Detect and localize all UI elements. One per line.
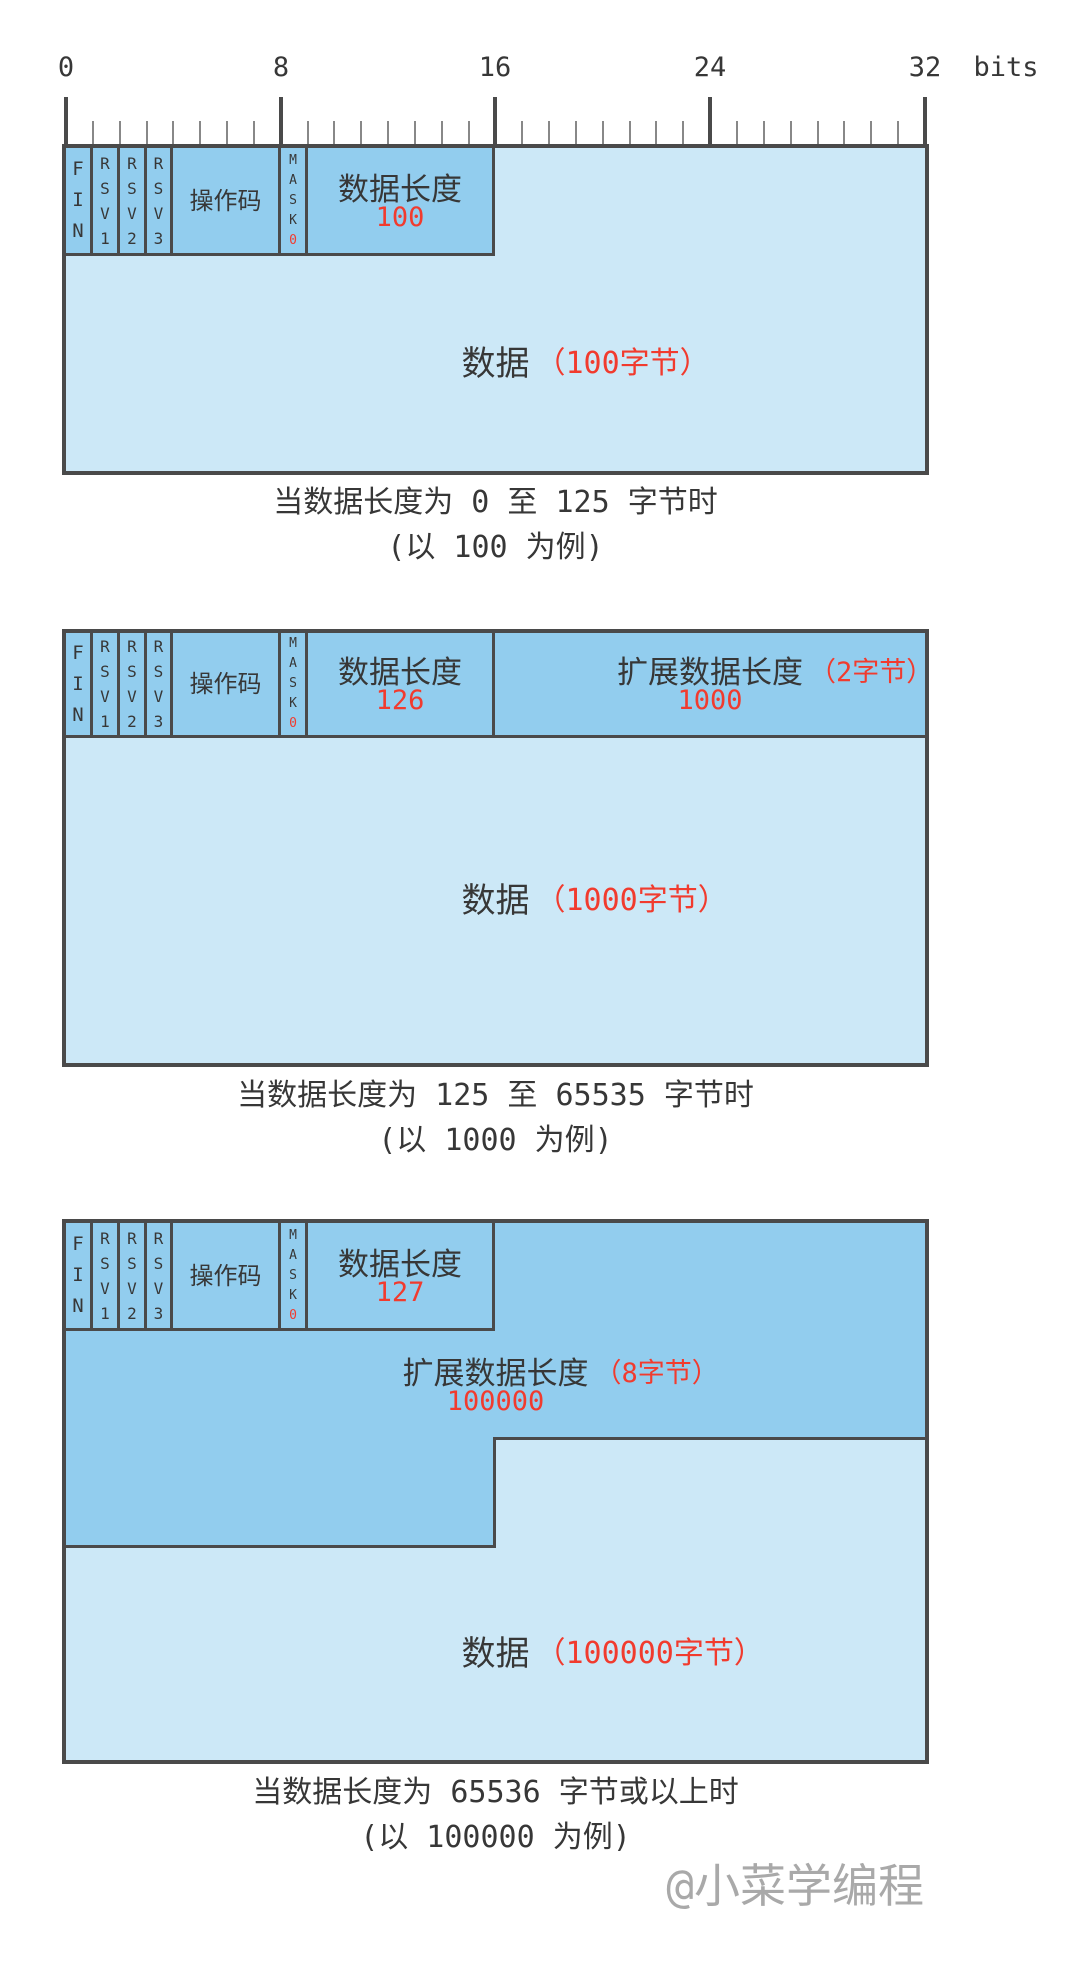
region-border xyxy=(495,1437,925,1440)
mask-label: MASK xyxy=(289,634,297,714)
rsv2-field: RSV2 xyxy=(120,148,147,253)
ruler-major-tick xyxy=(279,97,283,148)
caption-line: 当数据长度为 0 至 125 字节时 xyxy=(62,480,929,525)
payload-length-field: 数据长度 100 xyxy=(308,148,495,253)
rsv3-field: RSV3 xyxy=(147,633,173,735)
payload-length-field: 数据长度 126 xyxy=(308,633,495,735)
rsv3-field: RSV3 xyxy=(147,148,173,253)
rsv3-label: RSV3 xyxy=(154,151,164,251)
frame1-header: FIN RSV1 RSV2 RSV3 操作码 MASK 0 数据长度 100 xyxy=(66,148,495,256)
payload-area: 数据 （1000字节） xyxy=(66,738,925,1063)
payload-label: 数据 xyxy=(462,881,530,921)
extended-length-value: 1000 xyxy=(677,689,742,713)
caption-diagram-3: 当数据长度为 65536 字节或以上时 (以 100000 为例) xyxy=(62,1770,929,1860)
rsv2-field: RSV2 xyxy=(120,633,147,735)
ruler-labels: 0 8 16 24 32 bits xyxy=(66,52,1066,86)
payload-length-field: 数据长度 127 xyxy=(308,1223,495,1328)
watermark: @小菜学编程 xyxy=(666,1856,924,1916)
mask-label: MASK xyxy=(289,151,297,231)
ruler-label-32: 32 xyxy=(909,52,942,84)
fin-field: FIN xyxy=(66,633,93,735)
fin-label: FIN xyxy=(72,1229,83,1322)
extended-length-region xyxy=(66,1439,495,1547)
caption-line: (以 100000 为例) xyxy=(62,1815,929,1860)
payload-length-value: 100 xyxy=(376,206,425,230)
ruler-major-tick xyxy=(923,97,927,148)
rsv2-field: RSV2 xyxy=(120,1223,147,1328)
ruler-label-24: 24 xyxy=(694,52,727,84)
rsv1-field: RSV1 xyxy=(93,148,120,253)
fin-label: FIN xyxy=(72,638,83,731)
payload-length-value: 127 xyxy=(376,1281,425,1305)
extended-length-value: 100000 xyxy=(447,1390,545,1414)
mask-label: MASK xyxy=(289,1226,297,1306)
payload-length-value: 126 xyxy=(376,689,425,713)
fin-field: FIN xyxy=(66,148,93,253)
frame-diagram-1: FIN RSV1 RSV2 RSV3 操作码 MASK 0 数据长度 100 数… xyxy=(62,144,929,475)
frame3-header: FIN RSV1 RSV2 RSV3 操作码 MASK 0 数据长度 127 xyxy=(66,1223,495,1331)
mask-field: MASK 0 xyxy=(281,148,308,253)
payload-size-note: （1000字节） xyxy=(536,881,728,921)
extended-length-note: （8字节） xyxy=(595,1356,719,1392)
mask-field: MASK 0 xyxy=(281,1223,308,1328)
ruler-label-0: 0 xyxy=(58,52,74,84)
frame-diagram-2: FIN RSV1 RSV2 RSV3 操作码 MASK 0 数据长度 126 扩… xyxy=(62,629,929,1067)
ruler-major-tick xyxy=(493,97,497,148)
extended-length-label: 扩展数据长度 xyxy=(617,655,803,691)
opcode-field: 操作码 xyxy=(173,633,281,735)
rsv3-label: RSV3 xyxy=(154,634,164,734)
rsv2-label: RSV2 xyxy=(127,634,137,734)
rsv1-field: RSV1 xyxy=(93,633,120,735)
rsv1-label: RSV1 xyxy=(100,151,110,251)
mask-bit-value: 0 xyxy=(289,231,297,251)
mask-bit-value: 0 xyxy=(289,714,297,734)
caption-line: 当数据长度为 125 至 65535 字节时 xyxy=(62,1073,929,1118)
opcode-label: 操作码 xyxy=(190,186,262,216)
mask-bit-value: 0 xyxy=(289,1306,297,1326)
opcode-field: 操作码 xyxy=(173,148,281,253)
payload-size-note: （100字节） xyxy=(536,344,710,384)
rsv3-field: RSV3 xyxy=(147,1223,173,1328)
extended-length-note: （2字节） xyxy=(809,655,925,691)
fin-label: FIN xyxy=(72,154,83,247)
rsv2-label: RSV2 xyxy=(127,1226,137,1326)
extended-length-field: 扩展数据长度 （2字节） 1000 xyxy=(495,633,925,735)
region-border xyxy=(493,1437,496,1547)
payload-label: 数据 xyxy=(462,344,530,384)
bit-ruler xyxy=(66,97,927,148)
opcode-label: 操作码 xyxy=(190,1261,262,1291)
frame2-header: FIN RSV1 RSV2 RSV3 操作码 MASK 0 数据长度 126 扩… xyxy=(66,633,925,738)
ruler-major-tick xyxy=(708,97,712,148)
rsv1-field: RSV1 xyxy=(93,1223,120,1328)
mask-field: MASK 0 xyxy=(281,633,308,735)
frame-diagram-3: FIN RSV1 RSV2 RSV3 操作码 MASK 0 数据长度 127 扩… xyxy=(62,1219,929,1764)
extended-length-field: 扩展数据长度 （8字节） 100000 xyxy=(66,1331,925,1439)
caption-diagram-2: 当数据长度为 125 至 65535 字节时 (以 1000 为例) xyxy=(62,1073,929,1163)
payload-label: 数据 xyxy=(462,1634,530,1674)
payload-area: 数据 （100字节） xyxy=(66,256,925,471)
opcode-label: 操作码 xyxy=(190,669,262,699)
rsv3-label: RSV3 xyxy=(154,1226,164,1326)
caption-line: 当数据长度为 65536 字节或以上时 xyxy=(62,1770,929,1815)
ruler-label-8: 8 xyxy=(273,52,289,84)
rsv2-label: RSV2 xyxy=(127,151,137,251)
fin-field: FIN xyxy=(66,1223,93,1328)
websocket-frame-infographic: 0 8 16 24 32 bits FIN RSV1 RSV2 RSV3 操作码… xyxy=(0,0,1080,1962)
ruler-unit-label: bits xyxy=(973,52,1038,84)
caption-diagram-1: 当数据长度为 0 至 125 字节时 (以 100 为例) xyxy=(62,480,929,570)
rsv1-label: RSV1 xyxy=(100,1226,110,1326)
extended-length-label: 扩展数据长度 xyxy=(403,1356,589,1392)
payload-size-note: （100000字节） xyxy=(536,1634,764,1674)
ruler-label-16: 16 xyxy=(479,52,512,84)
caption-line: (以 100 为例) xyxy=(62,525,929,570)
opcode-field: 操作码 xyxy=(173,1223,281,1328)
payload-area: 数据 （100000字节） xyxy=(66,1547,925,1760)
ruler-major-tick xyxy=(64,97,68,148)
rsv1-label: RSV1 xyxy=(100,634,110,734)
caption-line: (以 1000 为例) xyxy=(62,1118,929,1163)
